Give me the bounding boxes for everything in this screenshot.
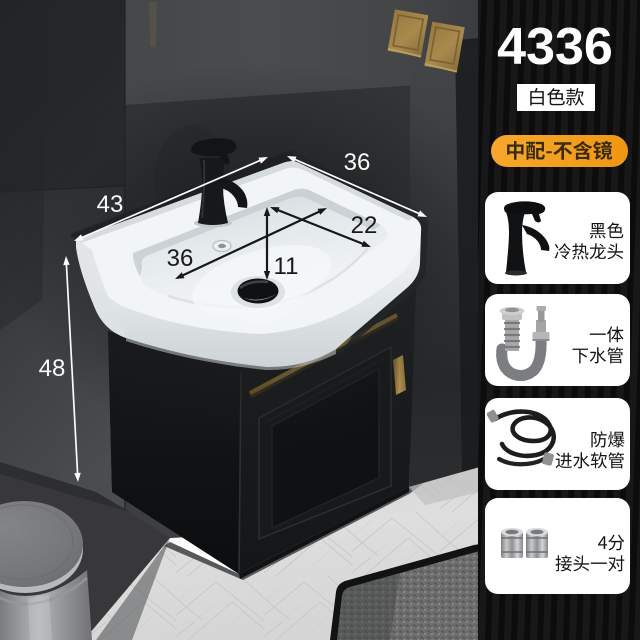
svg-text:36: 36 xyxy=(167,245,194,272)
svg-text:22: 22 xyxy=(351,212,378,239)
svg-text:43: 43 xyxy=(97,191,124,218)
svg-text:11: 11 xyxy=(274,253,299,280)
svg-text:36: 36 xyxy=(344,149,371,176)
svg-text:48: 48 xyxy=(39,355,66,382)
svg-text:4336: 4336 xyxy=(497,18,613,76)
